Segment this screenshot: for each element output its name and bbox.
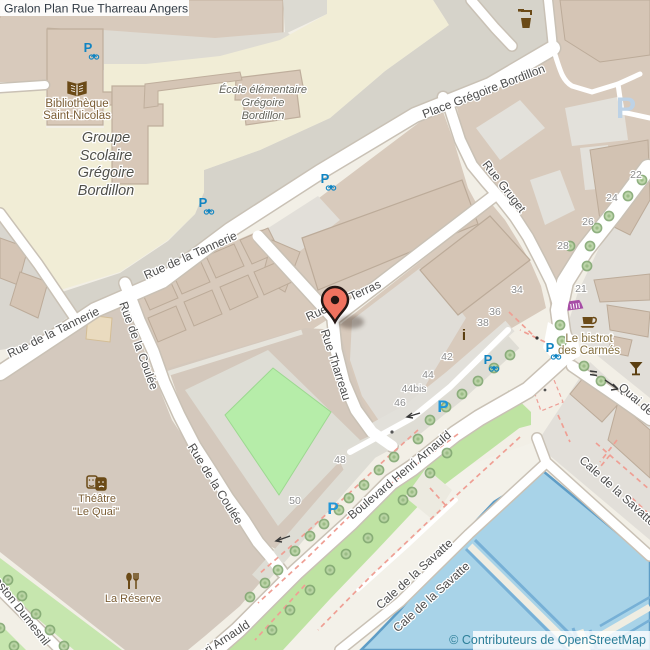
- svg-text:26: 26: [582, 216, 594, 228]
- svg-text:48: 48: [334, 454, 346, 466]
- svg-text:La Réserve: La Réserve: [105, 593, 161, 605]
- svg-text:38: 38: [477, 317, 489, 329]
- svg-text:P: P: [437, 397, 448, 416]
- svg-text:44: 44: [422, 369, 434, 381]
- svg-text:42: 42: [441, 351, 453, 363]
- svg-text:P: P: [616, 92, 636, 125]
- svg-text:Bordillon: Bordillon: [78, 183, 134, 199]
- svg-text:44bis: 44bis: [401, 383, 426, 395]
- svg-text:Bordillon: Bordillon: [242, 110, 285, 122]
- svg-text:Bibliothèque: Bibliothèque: [45, 98, 108, 110]
- svg-text:Théâtre: Théâtre: [78, 493, 116, 505]
- svg-text:Grégoire: Grégoire: [242, 97, 285, 109]
- svg-text:34: 34: [511, 284, 523, 296]
- svg-text:28: 28: [557, 240, 569, 252]
- svg-text:Saint-Nicolas: Saint-Nicolas: [43, 110, 111, 122]
- svg-text:24: 24: [606, 192, 618, 204]
- svg-text:des Carmés: des Carmés: [558, 345, 620, 357]
- svg-text:Gralon Plan Rue Tharreau Anger: Gralon Plan Rue Tharreau Angers: [4, 2, 188, 16]
- svg-text:22: 22: [630, 169, 642, 181]
- svg-text:46: 46: [394, 397, 406, 409]
- svg-text:21: 21: [575, 283, 587, 295]
- svg-text:P: P: [327, 499, 338, 518]
- svg-text:36: 36: [489, 306, 501, 318]
- svg-text:École élémentaire: École élémentaire: [219, 83, 307, 96]
- svg-text:Groupe: Groupe: [82, 130, 130, 146]
- svg-text:Scolaire: Scolaire: [80, 148, 132, 164]
- svg-text:i: i: [462, 327, 466, 344]
- svg-text:Le bistrot: Le bistrot: [565, 333, 613, 345]
- svg-text:50: 50: [289, 495, 301, 507]
- svg-text:© Contributeurs de OpenStreetM: © Contributeurs de OpenStreetMap: [449, 633, 646, 647]
- svg-text:Grégoire: Grégoire: [78, 165, 134, 181]
- svg-text:"Le Quai": "Le Quai": [73, 506, 119, 518]
